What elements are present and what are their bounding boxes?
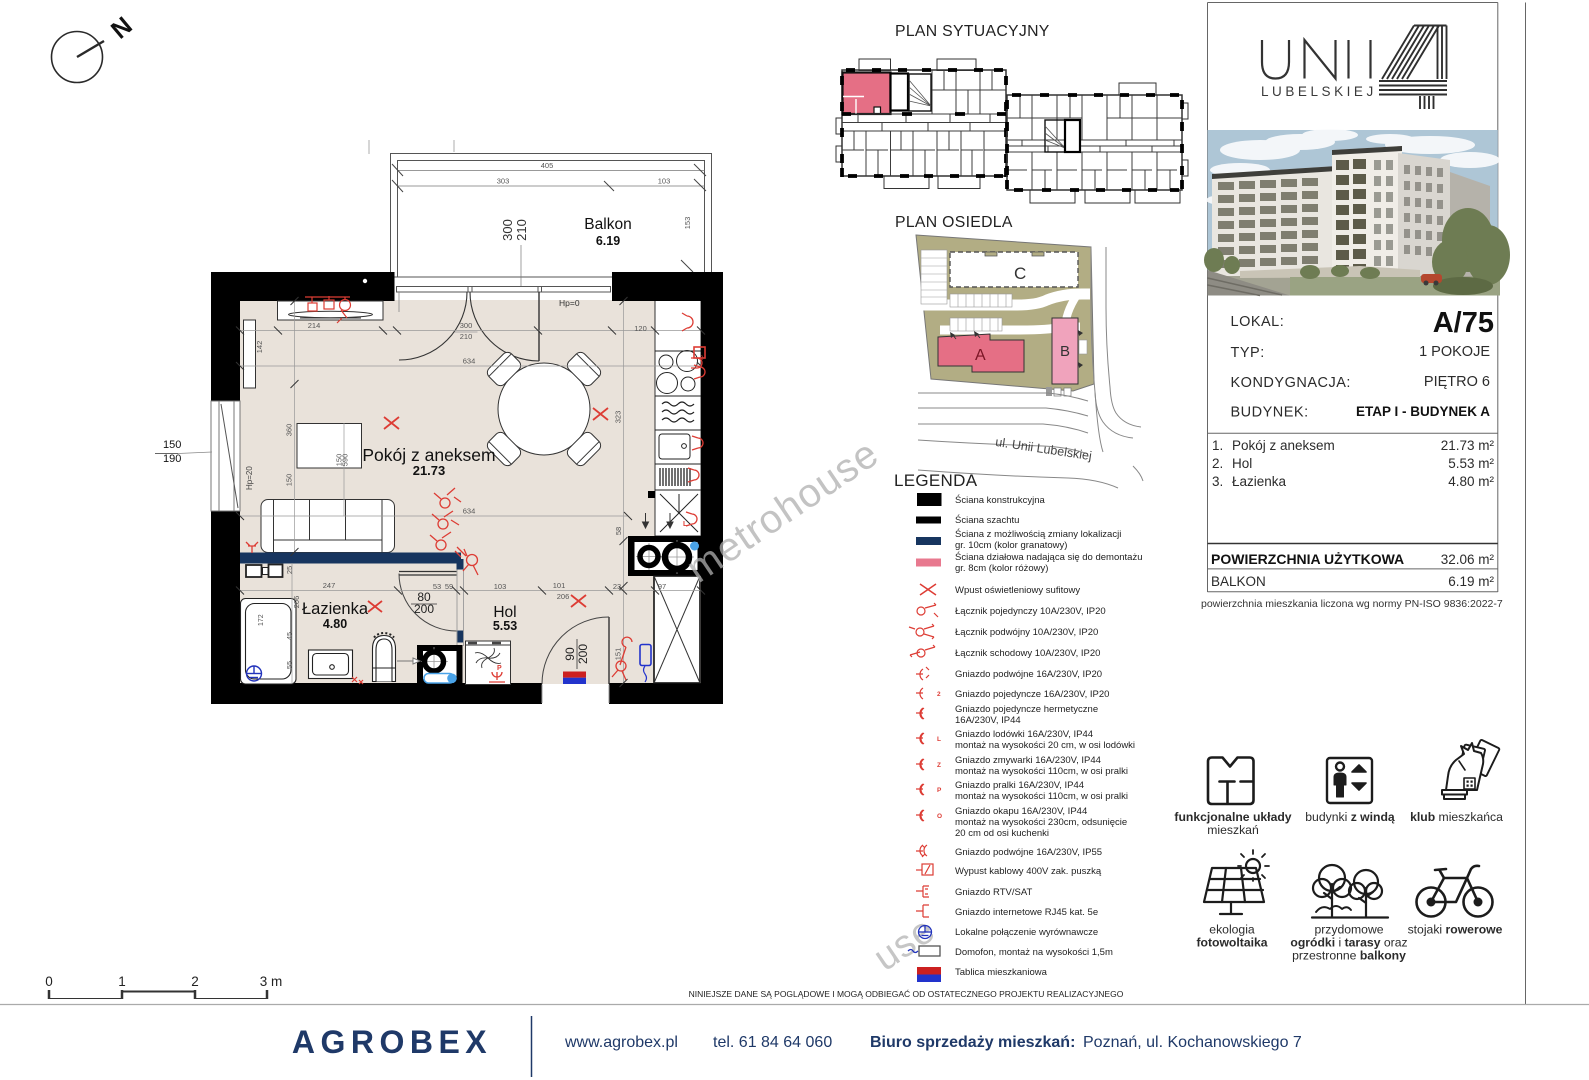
svg-text:ul. Unii Lubelskiej: ul. Unii Lubelskiej	[994, 435, 1092, 463]
svg-text:59: 59	[445, 582, 453, 591]
svg-text:Domofon, montaż na wysokości 1: Domofon, montaż na wysokości 1,5m	[955, 947, 1113, 958]
svg-text:200: 200	[576, 644, 590, 664]
svg-text:Balkon: Balkon	[584, 216, 631, 233]
svg-text:32.06 m²: 32.06 m²	[1441, 552, 1495, 567]
svg-text:Pokój z aneksem: Pokój z aneksem	[1232, 438, 1335, 453]
svg-text:6.19: 6.19	[596, 234, 620, 248]
svg-text:3 m: 3 m	[260, 974, 283, 989]
svg-text:120: 120	[634, 324, 647, 333]
svg-text:Hp=0: Hp=0	[559, 298, 580, 308]
svg-text:Łącznik pojedynczy 10A/230V, I: Łącznik pojedynczy 10A/230V, IP20	[955, 606, 1106, 617]
svg-text:Gniazdo pojedyncze hermetyczne: Gniazdo pojedyncze hermetyczne	[955, 704, 1098, 715]
svg-text:LOKAL:: LOKAL:	[1231, 314, 1285, 330]
svg-text:5.53 m²: 5.53 m²	[1448, 456, 1494, 471]
svg-text:powierzchnia mieszkania liczon: powierzchnia mieszkania liczona wg normy…	[1201, 598, 1503, 610]
svg-text:153: 153	[683, 217, 692, 230]
svg-text:L: L	[937, 736, 941, 743]
svg-text:ETAP I - BUDYNEK A: ETAP I - BUDYNEK A	[1356, 404, 1490, 419]
svg-text:25: 25	[285, 566, 294, 574]
svg-text:Wpust oświetleniowy sufitowy: Wpust oświetleniowy sufitowy	[955, 585, 1080, 596]
svg-text:4.80 m²: 4.80 m²	[1448, 474, 1494, 489]
svg-text:16A/230V, IP44: 16A/230V, IP44	[955, 715, 1021, 726]
svg-text:190: 190	[163, 453, 181, 465]
svg-text:fotowoltaika: fotowoltaika	[1196, 936, 1267, 950]
svg-text:O: O	[937, 813, 942, 820]
svg-text:budynki z windą: budynki z windą	[1305, 810, 1395, 824]
svg-text:405: 405	[541, 161, 554, 170]
svg-text:stojaki rowerowe: stojaki rowerowe	[1408, 923, 1503, 937]
svg-text:tel. 61 84 64 060: tel. 61 84 64 060	[713, 1034, 832, 1051]
svg-text:Gniazdo podwójne 16A/230V, IP5: Gniazdo podwójne 16A/230V, IP55	[955, 847, 1102, 858]
svg-text:KONDYGNACJA:: KONDYGNACJA:	[1231, 375, 1351, 391]
svg-text:634: 634	[463, 357, 476, 366]
svg-text:150: 150	[285, 474, 294, 487]
svg-text:montaż na wysokości 110cm, w o: montaż na wysokości 110cm, w osi pralki	[955, 766, 1128, 777]
svg-text:przydomowe: przydomowe	[1314, 923, 1383, 937]
svg-text:6.19 m²: 6.19 m²	[1448, 574, 1494, 589]
svg-text:Gniazdo RTV/SAT: Gniazdo RTV/SAT	[955, 887, 1032, 898]
svg-text:172: 172	[258, 614, 265, 626]
svg-text:Gniazdo zmywarki 16A/230V, IP4: Gniazdo zmywarki 16A/230V, IP44	[955, 755, 1101, 766]
svg-text:1.: 1.	[1212, 438, 1223, 453]
svg-text:TYP:: TYP:	[1231, 345, 1265, 361]
svg-text:150: 150	[163, 439, 181, 451]
svg-text:103: 103	[494, 582, 507, 591]
svg-text:21.73 m²: 21.73 m²	[1441, 438, 1495, 453]
svg-text:Ściana konstrukcyjna: Ściana konstrukcyjna	[955, 494, 1045, 506]
svg-text:Pokój z aneksem: Pokój z aneksem	[362, 445, 495, 465]
svg-text:BALKON: BALKON	[1211, 574, 1266, 589]
svg-text:P: P	[497, 665, 502, 672]
svg-text:gr. 8cm (kolor różowy): gr. 8cm (kolor różowy)	[955, 563, 1048, 574]
svg-text:Hp=20: Hp=20	[245, 466, 254, 490]
svg-text:Gniazdo pralki 16A/230V, IP44: Gniazdo pralki 16A/230V, IP44	[955, 780, 1084, 791]
svg-text:5.53: 5.53	[493, 619, 517, 633]
svg-text:Wypust kablowy 400V zak. puszk: Wypust kablowy 400V zak. puszką	[955, 866, 1102, 877]
svg-text:0: 0	[45, 974, 53, 989]
svg-text:300: 300	[500, 219, 515, 241]
svg-text:POWIERZCHNIA UŻYTKOWA: POWIERZCHNIA UŻYTKOWA	[1211, 551, 1404, 567]
svg-text:montaż na wysokości 110cm, w o: montaż na wysokości 110cm, w osi pralki	[955, 791, 1128, 802]
svg-text:53: 53	[433, 582, 441, 591]
svg-text:funkcjonalne układy: funkcjonalne układy	[1174, 810, 1291, 824]
svg-text:Gniazdo lodówki 16A/230V, IP44: Gniazdo lodówki 16A/230V, IP44	[955, 729, 1093, 740]
svg-text:Biuro sprzedaży mieszkań:: Biuro sprzedaży mieszkań:	[870, 1034, 1075, 1051]
svg-text:gr. 10cm (kolor granatowy): gr. 10cm (kolor granatowy)	[955, 540, 1067, 551]
svg-text:PLAN SYTUACYJNY: PLAN SYTUACYJNY	[895, 23, 1050, 40]
svg-text:55: 55	[285, 661, 294, 669]
svg-text:23: 23	[613, 582, 621, 591]
svg-text:206: 206	[557, 592, 570, 601]
svg-text:A/75: A/75	[1433, 307, 1494, 339]
svg-text:montaż na wysokości 20 cm, w o: montaż na wysokości 20 cm, w osi lodówki	[955, 740, 1135, 751]
svg-text:L: L	[683, 521, 688, 528]
svg-text:Gniazdo internetowe RJ45 kat.: Gniazdo internetowe RJ45 kat. 5e	[955, 907, 1098, 918]
svg-text:303: 303	[497, 177, 510, 186]
svg-text:Ściana działowa nadająca się d: Ściana działowa nadająca się do demontaż…	[955, 551, 1143, 563]
svg-text:90: 90	[563, 647, 577, 661]
svg-text:Hol: Hol	[1232, 456, 1252, 471]
svg-text:Tablica mieszkaniowa: Tablica mieszkaniowa	[955, 967, 1048, 978]
svg-text:B: B	[1060, 343, 1070, 360]
svg-text:LEGENDA: LEGENDA	[894, 471, 978, 490]
svg-text:BUDYNEK:: BUDYNEK:	[1231, 405, 1309, 421]
svg-text:1 POKOJE: 1 POKOJE	[1419, 344, 1490, 360]
svg-text:2.: 2.	[1212, 456, 1223, 471]
svg-text:97: 97	[658, 582, 666, 591]
svg-text:2: 2	[191, 974, 199, 989]
svg-text:Gniazdo pojedyncze 16A/230V, I: Gniazdo pojedyncze 16A/230V, IP20	[955, 689, 1109, 700]
svg-text:590: 590	[341, 454, 350, 467]
svg-text:1: 1	[118, 974, 126, 989]
svg-text:Poznań, ul. Kochanowskiego 7: Poznań, ul. Kochanowskiego 7	[1083, 1034, 1302, 1051]
svg-text:Łazienka: Łazienka	[1232, 474, 1287, 489]
svg-text:58: 58	[614, 527, 623, 535]
svg-text:210: 210	[460, 332, 473, 341]
svg-text:ogródki i tarasy oraz: ogródki i tarasy oraz	[1290, 936, 1407, 950]
svg-text:przestronne balkony: przestronne balkony	[1292, 949, 1406, 963]
svg-text:Ściana szachtu: Ściana szachtu	[955, 514, 1019, 526]
svg-text:4.80: 4.80	[323, 617, 347, 631]
svg-text:klub mieszkańca: klub mieszkańca	[1410, 810, 1503, 824]
svg-text:LUBELSKIEJ: LUBELSKIEJ	[1261, 84, 1377, 99]
svg-text:N: N	[106, 12, 138, 45]
svg-text:montaż na wysokości 230cm, ods: montaż na wysokości 230cm, odsunięcie	[955, 817, 1127, 828]
svg-text:210: 210	[514, 219, 529, 241]
svg-text:P: P	[937, 787, 942, 794]
svg-text:2: 2	[937, 691, 941, 698]
svg-text:214: 214	[308, 321, 321, 330]
svg-text:mieszkań: mieszkań	[1207, 823, 1259, 837]
svg-text:Gniazdo podwójne 16A/230V, IP2: Gniazdo podwójne 16A/230V, IP20	[955, 669, 1102, 680]
svg-text:PLAN OSIEDLA: PLAN OSIEDLA	[895, 214, 1013, 231]
svg-text:101: 101	[553, 581, 566, 590]
svg-text:45: 45	[285, 632, 294, 640]
svg-text:C: C	[1014, 264, 1026, 283]
svg-text:300: 300	[460, 321, 473, 330]
svg-text:Z: Z	[937, 762, 941, 769]
svg-text:Łącznik podwójny 10A/230V, IP2: Łącznik podwójny 10A/230V, IP20	[955, 627, 1098, 638]
svg-text:Lokalne połączenie wyrównawcze: Lokalne połączenie wyrównawcze	[955, 927, 1098, 938]
svg-text:Łącznik schodowy 10A/230V, IP2: Łącznik schodowy 10A/230V, IP20	[955, 648, 1100, 659]
svg-text:103: 103	[658, 177, 671, 186]
svg-text:634: 634	[463, 507, 476, 516]
svg-text:Łazienka: Łazienka	[302, 600, 369, 618]
svg-text:A: A	[975, 347, 986, 364]
svg-text:AGROBEX: AGROBEX	[292, 1024, 492, 1060]
svg-text:20 cm od osi kuchenki: 20 cm od osi kuchenki	[955, 828, 1049, 839]
svg-text:323: 323	[614, 411, 623, 424]
svg-text:www.agrobex.pl: www.agrobex.pl	[564, 1034, 678, 1051]
svg-text:206: 206	[292, 596, 301, 609]
svg-text:151: 151	[614, 648, 623, 661]
svg-text:360: 360	[285, 424, 294, 437]
svg-text:ekologia: ekologia	[1209, 923, 1255, 937]
svg-text:Gniazdo okapu 16A/230V, IP44: Gniazdo okapu 16A/230V, IP44	[955, 806, 1087, 817]
svg-text:21.73: 21.73	[413, 463, 446, 478]
svg-text:3.: 3.	[1212, 474, 1223, 489]
svg-text:247: 247	[323, 581, 336, 590]
svg-text:NINIEJSZE DANE SĄ POGLĄDOWE I: NINIEJSZE DANE SĄ POGLĄDOWE I MOGĄ ODBIE…	[689, 989, 1124, 999]
svg-text:Ściana z możliwością zmiany lo: Ściana z możliwością zmiany lokalizacji	[955, 528, 1121, 540]
svg-text:142: 142	[255, 341, 264, 354]
svg-text:PIĘTRO 6: PIĘTRO 6	[1424, 374, 1490, 390]
